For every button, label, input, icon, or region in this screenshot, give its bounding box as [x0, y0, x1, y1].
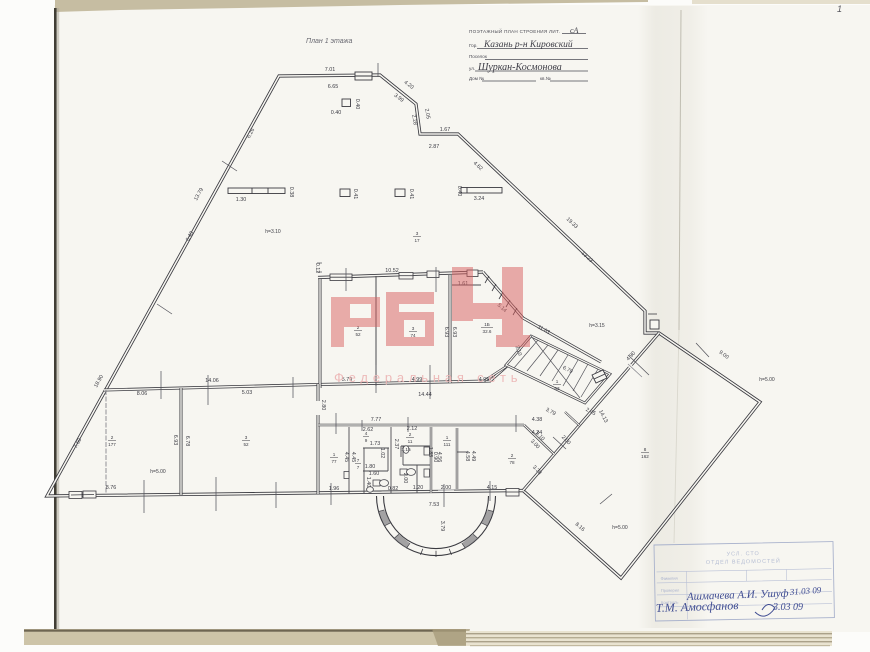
svg-text:14.44: 14.44: [418, 392, 432, 398]
svg-text:h=5.00: h=5.00: [759, 377, 775, 383]
svg-text:4.38: 4.38: [532, 417, 543, 423]
svg-text:4.45: 4.45: [350, 452, 356, 463]
svg-text:Дом №: Дом №: [469, 76, 484, 81]
svg-text:h=3.10: h=3.10: [265, 229, 281, 235]
svg-text:Поселок: Поселок: [469, 54, 488, 59]
svg-text:1.80: 1.80: [365, 464, 376, 470]
svg-text:5.03: 5.03: [242, 390, 253, 396]
svg-text:4.15: 4.15: [487, 485, 498, 491]
svg-text:3.03 09: 3.03 09: [772, 602, 803, 613]
svg-text:0.38: 0.38: [288, 187, 294, 198]
svg-text:6.93: 6.93: [443, 327, 449, 338]
svg-text:177: 177: [108, 442, 116, 447]
svg-text:6.93: 6.93: [172, 435, 178, 446]
svg-text:Гор.: Гор.: [469, 43, 478, 48]
svg-text:0.12: 0.12: [314, 263, 320, 274]
svg-text:1: 1: [446, 435, 449, 440]
svg-text:2.80: 2.80: [320, 400, 326, 411]
svg-text:УСЛ. СТО: УСЛ. СТО: [727, 551, 760, 558]
svg-text:3.79: 3.79: [439, 521, 445, 532]
svg-text:1.73: 1.73: [370, 441, 381, 447]
svg-text:2.00: 2.00: [441, 485, 452, 491]
svg-text:7.01: 7.01: [325, 67, 336, 73]
svg-text:162: 162: [641, 454, 649, 459]
svg-text:4.49: 4.49: [470, 451, 476, 462]
svg-text:1.96: 1.96: [329, 486, 340, 492]
svg-text:7: 7: [357, 465, 360, 470]
svg-text:52: 52: [243, 442, 249, 447]
svg-text:0.40: 0.40: [456, 186, 462, 197]
svg-text:Проверил: Проверил: [661, 588, 680, 593]
svg-text:1: 1: [333, 452, 336, 457]
svg-text:111: 111: [444, 442, 451, 447]
svg-text:7: 7: [357, 458, 360, 463]
svg-text:h=5.00: h=5.00: [150, 469, 166, 475]
svg-text:3.24: 3.24: [474, 196, 485, 202]
svg-text:1.15: 1.15: [401, 447, 411, 453]
svg-text:1.67: 1.67: [440, 127, 451, 133]
svg-text:1.20: 1.20: [413, 485, 424, 491]
svg-text:4.58: 4.58: [464, 451, 470, 462]
svg-text:17: 17: [414, 238, 420, 243]
svg-text:63: 63: [554, 386, 560, 391]
svg-text:3: 3: [412, 326, 415, 331]
svg-text:Федеральная сеть: Федеральная сеть: [334, 370, 522, 385]
svg-text:4: 4: [365, 431, 368, 436]
svg-text:ПОЭТАЖНЫЙ ПЛАН СТРОЕНИЯ ЛИТ.: ПОЭТАЖНЫЙ ПЛАН СТРОЕНИЯ ЛИТ.: [469, 27, 560, 34]
svg-text:2.87: 2.87: [429, 144, 440, 150]
svg-text:2.37: 2.37: [393, 439, 399, 450]
svg-text:8: 8: [644, 447, 647, 452]
svg-text:1.30: 1.30: [236, 197, 247, 203]
svg-text:6.65: 6.65: [328, 84, 339, 90]
svg-text:0.82: 0.82: [388, 486, 399, 492]
svg-text:3: 3: [416, 231, 419, 236]
svg-text:6.93: 6.93: [451, 327, 457, 338]
svg-text:2: 2: [111, 435, 114, 440]
svg-text:8.76: 8.76: [106, 485, 117, 491]
svg-text:1.02: 1.02: [379, 448, 385, 459]
svg-text:4.56: 4.56: [436, 452, 442, 463]
svg-text:2.00: 2.00: [402, 473, 408, 484]
svg-text:10.52: 10.52: [385, 268, 399, 274]
svg-text:52: 52: [355, 332, 361, 337]
svg-text:3: 3: [245, 435, 248, 440]
svg-text:План 1 этажа: План 1 этажа: [306, 38, 352, 45]
svg-text:сА: сА: [570, 26, 579, 35]
svg-text:1Б: 1Б: [484, 322, 490, 327]
svg-text:8.06: 8.06: [137, 391, 148, 397]
svg-text:h=3.15: h=3.15: [589, 323, 605, 329]
svg-text:0.40: 0.40: [354, 99, 360, 110]
svg-text:0.40: 0.40: [331, 110, 342, 116]
svg-text:77: 77: [331, 459, 337, 464]
svg-text:h=5.00: h=5.00: [612, 525, 628, 531]
svg-text:Шуркан-Космонова: Шуркан-Космонова: [477, 62, 562, 73]
svg-text:0.41: 0.41: [408, 189, 414, 200]
svg-text:Т.М. Амосфанов: Т.М. Амосфанов: [656, 598, 739, 615]
svg-text:78: 78: [509, 460, 515, 465]
svg-text:14.06: 14.06: [205, 378, 219, 384]
svg-text:7.53: 7.53: [429, 502, 440, 508]
svg-text:32.6: 32.6: [483, 329, 492, 334]
svg-text:2: 2: [409, 432, 412, 437]
svg-text:1.40: 1.40: [365, 477, 371, 488]
svg-text:2: 2: [511, 453, 514, 458]
svg-text:9: 9: [365, 438, 368, 443]
svg-text:4.45: 4.45: [343, 452, 349, 463]
svg-text:Фамилия: Фамилия: [661, 576, 678, 581]
svg-text:7.77: 7.77: [371, 417, 382, 423]
svg-text:ул.: ул.: [469, 66, 475, 71]
svg-text:кв.№: кв.№: [540, 76, 551, 81]
svg-text:0.41: 0.41: [352, 189, 358, 200]
svg-text:1: 1: [837, 4, 842, 14]
svg-text:1: 1: [556, 379, 559, 384]
svg-text:11: 11: [408, 439, 413, 444]
svg-text:6.78: 6.78: [184, 436, 190, 447]
svg-text:Казань р-н Кировский: Казань р-н Кировский: [483, 39, 573, 50]
